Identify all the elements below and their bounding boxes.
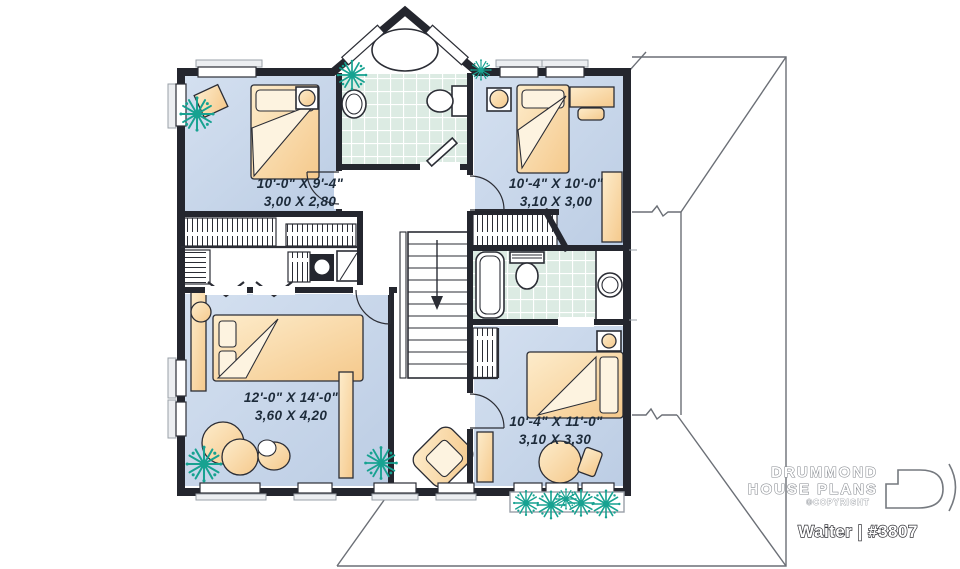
plan-title: Waiter | #3807 <box>798 522 918 541</box>
room-dims-metric: 3,10 X 3,30 <box>519 432 592 447</box>
brand-block: DRUMMOND HOUSE PLANS ©COPYRIGHT Waiter |… <box>748 464 956 541</box>
window-icon <box>546 67 584 77</box>
room-dims-imperial: 10'-4" X 11'-0" <box>509 414 603 429</box>
floor-plan-page: 10'-0" X 9'-4" 3,00 X 2,80 10'-4" X 10'-… <box>0 0 960 569</box>
closet-rack-icon <box>473 214 557 246</box>
closet-rack-icon <box>286 224 356 246</box>
window-icon <box>438 483 474 493</box>
brand-name-line2: HOUSE PLANS <box>748 481 878 498</box>
bed-icon <box>213 315 363 381</box>
window-icon <box>176 84 186 126</box>
room-dims-imperial: 10'-4" X 10'-0" <box>509 176 604 191</box>
window-icon <box>176 402 186 436</box>
window-icon <box>500 67 538 77</box>
drummond-d-icon <box>886 464 956 511</box>
sink-icon <box>342 90 366 118</box>
window-icon <box>374 483 416 493</box>
window-icon <box>298 483 332 493</box>
nightstand-icon <box>296 87 318 109</box>
room-dims-metric: 3,10 X 3,00 <box>520 194 593 209</box>
dresser-icon <box>339 372 353 478</box>
window-icon <box>200 483 260 493</box>
staircase-icon <box>400 232 470 378</box>
bed-icon <box>517 85 569 173</box>
dresser-icon <box>602 172 622 242</box>
stair-railing <box>400 232 406 378</box>
bathtub-icon <box>476 252 504 318</box>
nightstand-icon <box>487 88 511 111</box>
nightstand-icon <box>597 331 621 351</box>
room-dims-metric: 3,00 X 2,80 <box>264 194 337 209</box>
copyright-text: ©COPYRIGHT <box>806 498 869 507</box>
closet-rack-icon <box>184 218 276 246</box>
dresser-icon <box>184 250 210 284</box>
dresser-icon <box>477 432 493 482</box>
room-dims-metric: 3,60 X 4,20 <box>255 408 328 423</box>
floor-plan-drawing: 10'-0" X 9'-4" 3,00 X 2,80 10'-4" X 10'-… <box>0 0 960 569</box>
vanity-sink-icon <box>596 250 624 320</box>
desk-chair-icon <box>578 108 604 120</box>
window-icon <box>176 360 186 396</box>
room-dims-imperial: 12'-0" X 14'-0" <box>244 390 339 405</box>
bed-icon <box>527 352 623 418</box>
brand-name-line1: DRUMMOND <box>771 464 878 481</box>
closet-rack-icon <box>473 328 497 378</box>
lamp-icon <box>191 302 211 322</box>
room-dims-imperial: 10'-0" X 9'-4" <box>257 176 344 191</box>
closet-rack-icon <box>288 252 310 282</box>
bathroom-tile-floor <box>342 74 470 166</box>
window-icon <box>198 67 256 77</box>
washer-icon <box>310 254 334 281</box>
